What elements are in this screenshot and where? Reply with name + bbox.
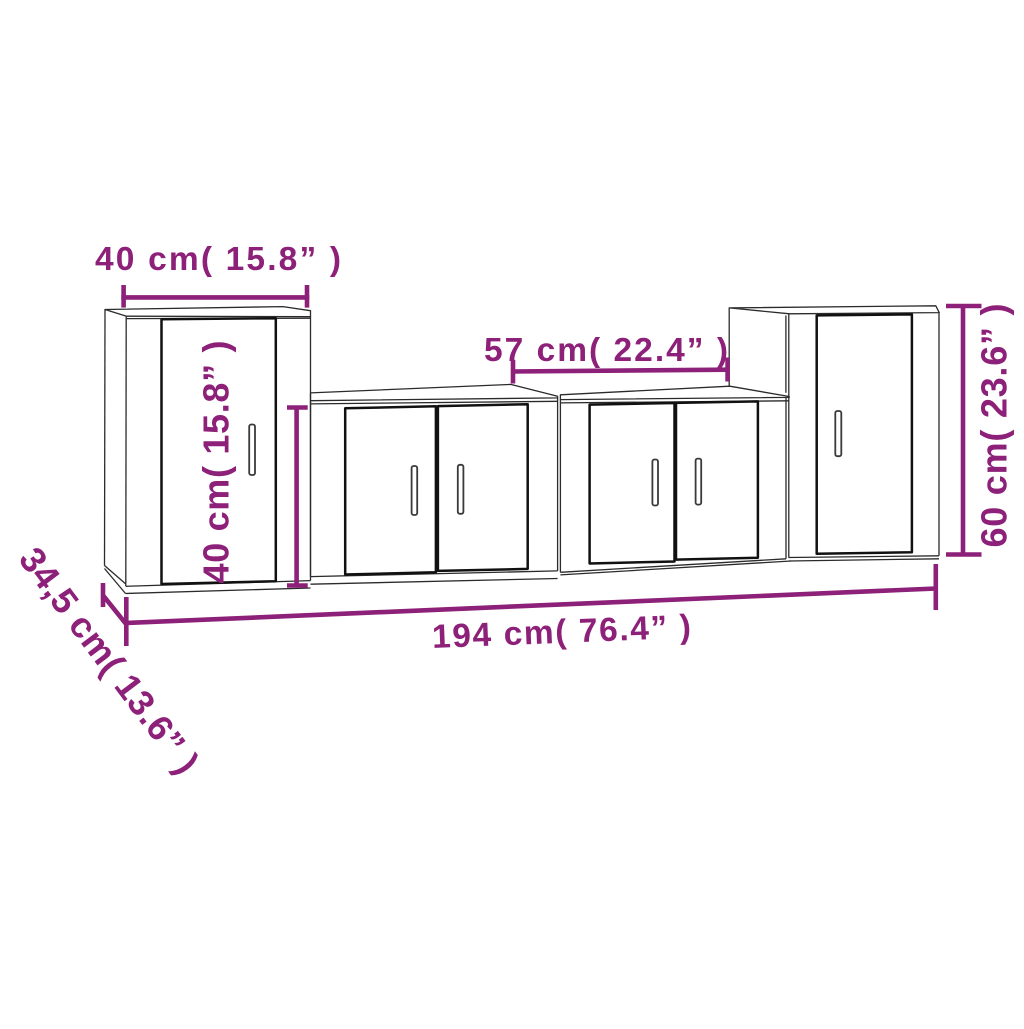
svg-text:57 cm( 22.4” ): 57 cm( 22.4” ) bbox=[484, 332, 728, 369]
svg-text:60 cm( 23.6” ): 60 cm( 23.6” ) bbox=[974, 304, 1015, 548]
svg-text:40 cm( 15.8” ): 40 cm( 15.8” ) bbox=[196, 341, 237, 584]
svg-text:40 cm( 15.8” ): 40 cm( 15.8” ) bbox=[95, 241, 341, 278]
